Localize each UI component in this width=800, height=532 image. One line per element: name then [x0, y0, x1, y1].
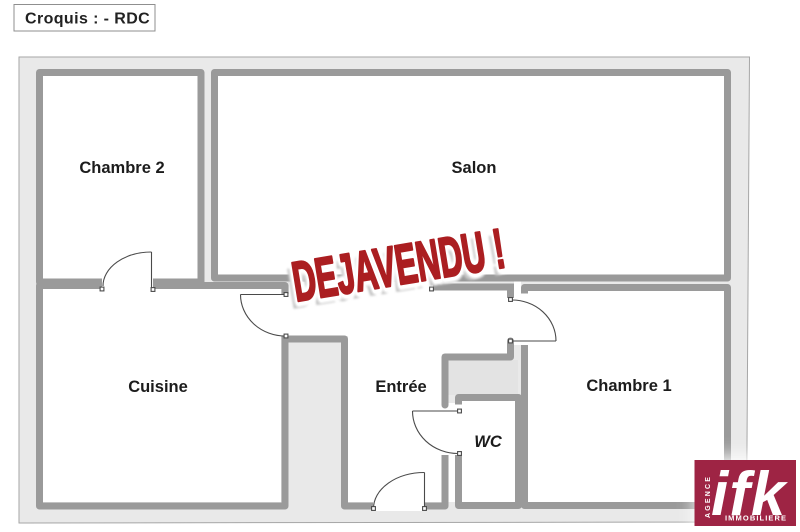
svg-text:Cuisine: Cuisine: [128, 378, 188, 396]
svg-text:AGENCE: AGENCE: [705, 475, 712, 518]
svg-text:IMMOBILIERE: IMMOBILIERE: [725, 514, 787, 523]
svg-text:Chambre 2: Chambre 2: [79, 159, 164, 177]
svg-text:WC: WC: [474, 433, 503, 451]
svg-text:Croquis : - RDC: Croquis : - RDC: [25, 11, 150, 28]
svg-text:Chambre 1: Chambre 1: [586, 377, 671, 395]
svg-text:Entrée: Entrée: [375, 378, 426, 396]
svg-text:Salon: Salon: [452, 159, 497, 177]
